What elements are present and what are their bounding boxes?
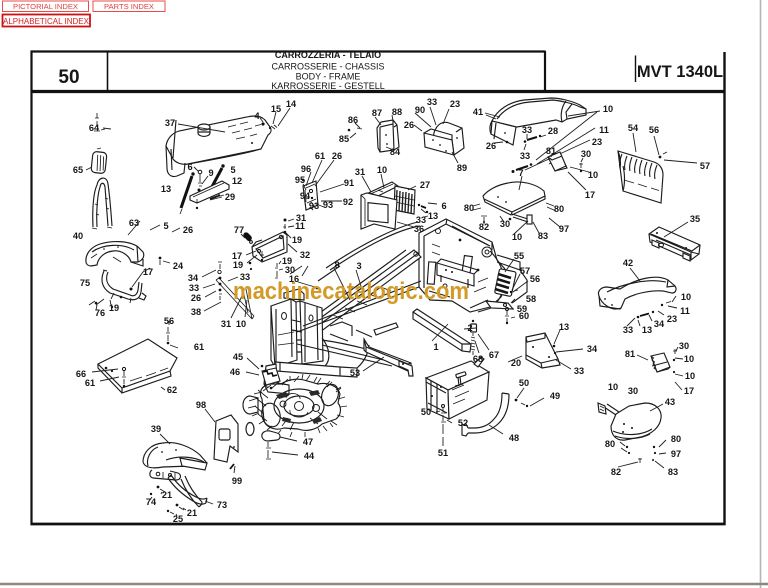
svg-text:57: 57 <box>700 161 710 171</box>
svg-text:machinecatalogic.com: machinecatalogic.com <box>233 278 469 305</box>
svg-text:90: 90 <box>415 105 425 115</box>
svg-text:11: 11 <box>295 221 305 231</box>
svg-text:77: 77 <box>234 225 244 235</box>
svg-text:27: 27 <box>420 180 430 190</box>
svg-text:36: 36 <box>414 224 424 234</box>
svg-text:92: 92 <box>343 197 353 207</box>
svg-text:3: 3 <box>356 261 361 271</box>
svg-text:23: 23 <box>592 137 602 147</box>
svg-text:31: 31 <box>221 319 231 329</box>
svg-text:80: 80 <box>464 203 474 213</box>
svg-text:97: 97 <box>559 224 569 234</box>
svg-text:29: 29 <box>225 192 235 202</box>
svg-text:PICTORIAL INDEX: PICTORIAL INDEX <box>13 2 78 11</box>
svg-text:33: 33 <box>240 272 250 282</box>
svg-text:15: 15 <box>271 104 281 114</box>
svg-text:10: 10 <box>588 170 598 180</box>
svg-text:30: 30 <box>581 149 591 159</box>
svg-text:80: 80 <box>554 204 564 214</box>
svg-text:34: 34 <box>188 273 199 283</box>
svg-text:50: 50 <box>421 407 431 417</box>
svg-text:21: 21 <box>187 508 197 518</box>
svg-text:48: 48 <box>509 433 519 443</box>
svg-text:63: 63 <box>129 218 139 228</box>
svg-text:83: 83 <box>538 231 548 241</box>
svg-text:13: 13 <box>559 322 569 332</box>
svg-text:80: 80 <box>605 439 615 449</box>
svg-text:19: 19 <box>233 260 243 270</box>
svg-text:53: 53 <box>350 368 360 378</box>
svg-text:21: 21 <box>162 490 172 500</box>
svg-text:33: 33 <box>520 151 530 161</box>
svg-text:81: 81 <box>546 146 556 156</box>
svg-text:34: 34 <box>654 319 665 329</box>
svg-text:94: 94 <box>300 191 311 201</box>
svg-text:4: 4 <box>254 111 260 121</box>
svg-text:BODY - FRAME: BODY - FRAME <box>296 72 361 82</box>
svg-text:82: 82 <box>479 222 489 232</box>
svg-text:56: 56 <box>530 274 540 284</box>
svg-text:54: 54 <box>628 123 639 133</box>
svg-text:8: 8 <box>334 260 339 270</box>
svg-text:76: 76 <box>95 308 105 318</box>
svg-text:56: 56 <box>164 316 174 326</box>
svg-text:5: 5 <box>163 221 168 231</box>
svg-text:67: 67 <box>489 350 499 360</box>
svg-text:12: 12 <box>232 176 242 186</box>
svg-text:28: 28 <box>548 126 558 136</box>
svg-text:10: 10 <box>377 165 387 175</box>
svg-text:23: 23 <box>667 314 677 324</box>
svg-text:33: 33 <box>623 325 633 335</box>
svg-text:95: 95 <box>295 175 305 185</box>
svg-text:6: 6 <box>441 201 446 211</box>
svg-text:60: 60 <box>519 311 529 321</box>
svg-text:13: 13 <box>161 184 171 194</box>
svg-text:91: 91 <box>344 178 354 188</box>
svg-text:82: 82 <box>611 467 621 477</box>
svg-text:33: 33 <box>427 97 437 107</box>
svg-text:40: 40 <box>73 231 83 241</box>
svg-text:99: 99 <box>232 476 242 486</box>
svg-text:10: 10 <box>685 371 695 381</box>
svg-text:PARTS INDEX: PARTS INDEX <box>104 2 154 11</box>
svg-text:57: 57 <box>520 266 530 276</box>
svg-text:64: 64 <box>89 123 100 133</box>
svg-text:26: 26 <box>404 120 414 130</box>
svg-text:55: 55 <box>514 251 524 261</box>
svg-text:30: 30 <box>628 386 638 396</box>
svg-text:81: 81 <box>625 349 635 359</box>
svg-text:14: 14 <box>286 99 297 109</box>
svg-text:39: 39 <box>151 424 161 434</box>
svg-text:30: 30 <box>500 219 510 229</box>
svg-text:1: 1 <box>433 342 438 352</box>
svg-text:88: 88 <box>392 107 402 117</box>
svg-text:5: 5 <box>230 165 235 175</box>
svg-text:35: 35 <box>690 214 700 224</box>
svg-text:62: 62 <box>167 385 177 395</box>
svg-text:74: 74 <box>146 497 157 507</box>
svg-text:47: 47 <box>303 437 313 447</box>
svg-text:30: 30 <box>679 341 689 351</box>
svg-text:19: 19 <box>109 303 119 313</box>
svg-text:17: 17 <box>585 190 595 200</box>
svg-text:50: 50 <box>519 378 529 388</box>
svg-text:87: 87 <box>372 108 382 118</box>
svg-text:37: 37 <box>165 118 175 128</box>
svg-text:61: 61 <box>315 151 325 161</box>
svg-text:11: 11 <box>680 306 690 316</box>
svg-text:50: 50 <box>58 67 79 88</box>
svg-text:31: 31 <box>355 167 365 177</box>
svg-text:42: 42 <box>623 258 633 268</box>
svg-text:56: 56 <box>649 125 659 135</box>
svg-text:98: 98 <box>196 400 206 410</box>
svg-text:17: 17 <box>143 267 153 277</box>
svg-text:KARROSSERIE - GESTELL: KARROSSERIE - GESTELL <box>271 81 385 91</box>
svg-text:32: 32 <box>300 250 310 260</box>
svg-text:75: 75 <box>80 278 90 288</box>
svg-text:34: 34 <box>587 344 598 354</box>
svg-text:24: 24 <box>173 261 184 271</box>
svg-text:33: 33 <box>574 366 584 376</box>
svg-text:17: 17 <box>684 386 694 396</box>
svg-text:61: 61 <box>85 378 95 388</box>
svg-text:16: 16 <box>289 274 299 284</box>
svg-text:85: 85 <box>339 134 349 144</box>
svg-text:26: 26 <box>332 151 342 161</box>
svg-text:43: 43 <box>665 397 675 407</box>
svg-text:10: 10 <box>608 382 618 392</box>
svg-text:49: 49 <box>550 391 560 401</box>
svg-text:26: 26 <box>183 225 193 235</box>
svg-text:58: 58 <box>526 294 536 304</box>
svg-text:33: 33 <box>189 283 199 293</box>
svg-text:25: 25 <box>173 514 183 524</box>
svg-text:41: 41 <box>473 107 483 117</box>
svg-text:11: 11 <box>599 125 609 135</box>
svg-text:52: 52 <box>458 418 468 428</box>
svg-text:33: 33 <box>522 125 532 135</box>
svg-text:93: 93 <box>309 201 319 211</box>
svg-text:10: 10 <box>684 354 694 364</box>
svg-text:80: 80 <box>671 434 681 444</box>
svg-text:84: 84 <box>390 147 401 157</box>
svg-text:26: 26 <box>191 293 201 303</box>
svg-text:13: 13 <box>428 211 438 221</box>
svg-text:61: 61 <box>194 342 204 352</box>
svg-text:6: 6 <box>187 162 192 172</box>
svg-text:2: 2 <box>467 323 472 333</box>
svg-text:97: 97 <box>671 449 681 459</box>
svg-text:89: 89 <box>457 163 467 173</box>
svg-text:51: 51 <box>438 448 448 458</box>
svg-text:68: 68 <box>473 354 483 364</box>
svg-text:10: 10 <box>681 292 691 302</box>
svg-text:10: 10 <box>603 104 613 114</box>
svg-text:44: 44 <box>304 451 315 461</box>
svg-text:19: 19 <box>292 235 302 245</box>
svg-text:46: 46 <box>230 367 240 377</box>
svg-text:9: 9 <box>208 168 213 178</box>
svg-text:38: 38 <box>191 307 201 317</box>
svg-text:23: 23 <box>450 99 460 109</box>
svg-text:26: 26 <box>486 141 496 151</box>
svg-text:10: 10 <box>512 232 522 242</box>
svg-text:10: 10 <box>236 319 246 329</box>
svg-text:96: 96 <box>301 164 311 174</box>
svg-text:86: 86 <box>348 115 358 125</box>
svg-text:13: 13 <box>642 325 652 335</box>
svg-text:CARROZZERIA - TELAIO: CARROZZERIA - TELAIO <box>275 50 381 60</box>
svg-text:93: 93 <box>323 200 333 210</box>
svg-text:83: 83 <box>668 467 678 477</box>
svg-text:7: 7 <box>518 168 523 178</box>
svg-text:65: 65 <box>73 165 83 175</box>
svg-text:45: 45 <box>233 352 243 362</box>
svg-text:ALPHABETICAL INDEX: ALPHABETICAL INDEX <box>3 17 90 26</box>
svg-text:MVT 1340L: MVT 1340L <box>637 63 723 81</box>
svg-text:CARROSSERIE - CHASSIS: CARROSSERIE - CHASSIS <box>271 62 384 72</box>
svg-text:73: 73 <box>217 500 227 510</box>
svg-text:20: 20 <box>511 358 521 368</box>
